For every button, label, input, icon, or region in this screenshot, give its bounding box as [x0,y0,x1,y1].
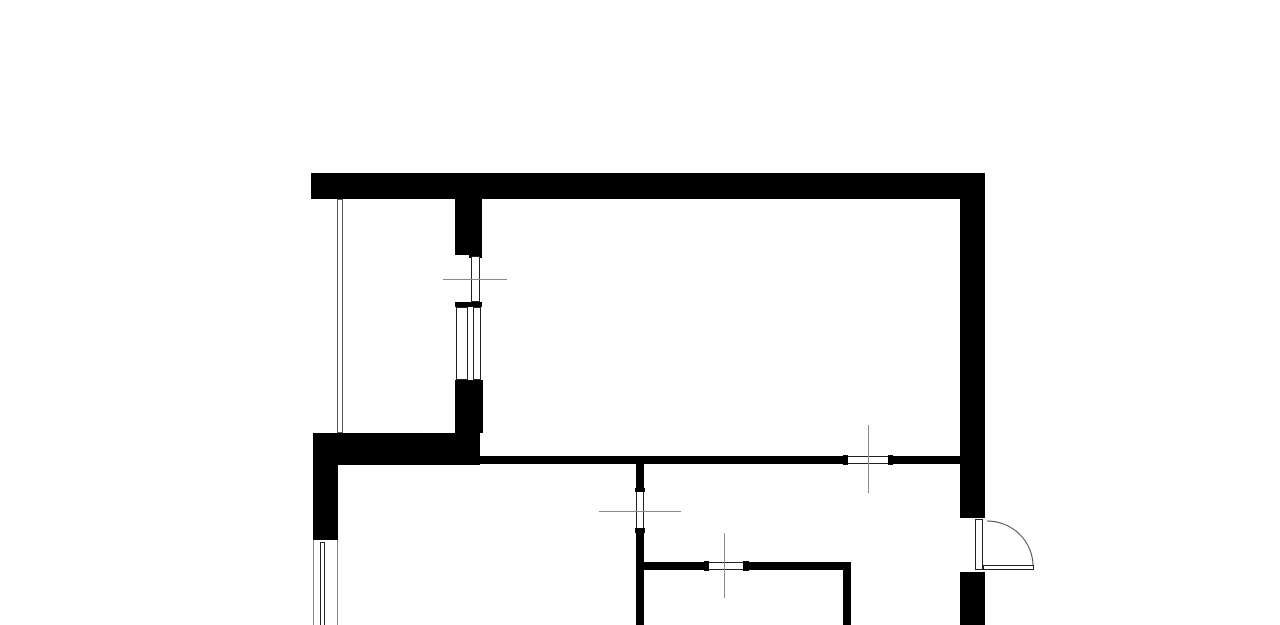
crosshair-bath-door [599,511,681,512]
right-exterior-wall-upper [960,174,985,518]
crosshair-hall-window [868,425,869,493]
entrance-door-swing-arc [987,521,1033,566]
room-wall-horizontal-right [749,562,850,570]
crosshair-room-door [724,533,725,598]
left-thick-wall-horizontal [313,433,480,465]
entrance-door-leaf [983,565,1034,570]
bath-wall-vertical-lower [636,533,644,625]
top-exterior-wall [311,173,985,199]
room-door-opening [709,562,743,570]
hall-wall-right-segment [893,456,960,464]
balcony-partition-wall-lower [455,380,483,433]
left-thick-wall-vertical [313,433,338,540]
right-exterior-wall-lower [960,572,985,625]
left-window-glazing [320,542,325,625]
crosshair-balcony-door [443,279,507,280]
hall-wall-left-segment [475,456,843,464]
left-window-outer-line-right [337,540,338,625]
floorplan [0,0,1280,625]
balcony-partition-wall-upper [455,199,482,255]
bath-door-opening [636,492,644,528]
left-window-outer-line-left [313,540,314,625]
room-wall-horizontal-left [644,562,704,570]
bath-wall-vertical-upper [636,456,644,488]
balcony-side-glazing [337,199,343,433]
room-wall-vertical [843,562,851,625]
balcony-window-glazing [467,307,474,380]
entrance-door-frame [975,519,983,570]
